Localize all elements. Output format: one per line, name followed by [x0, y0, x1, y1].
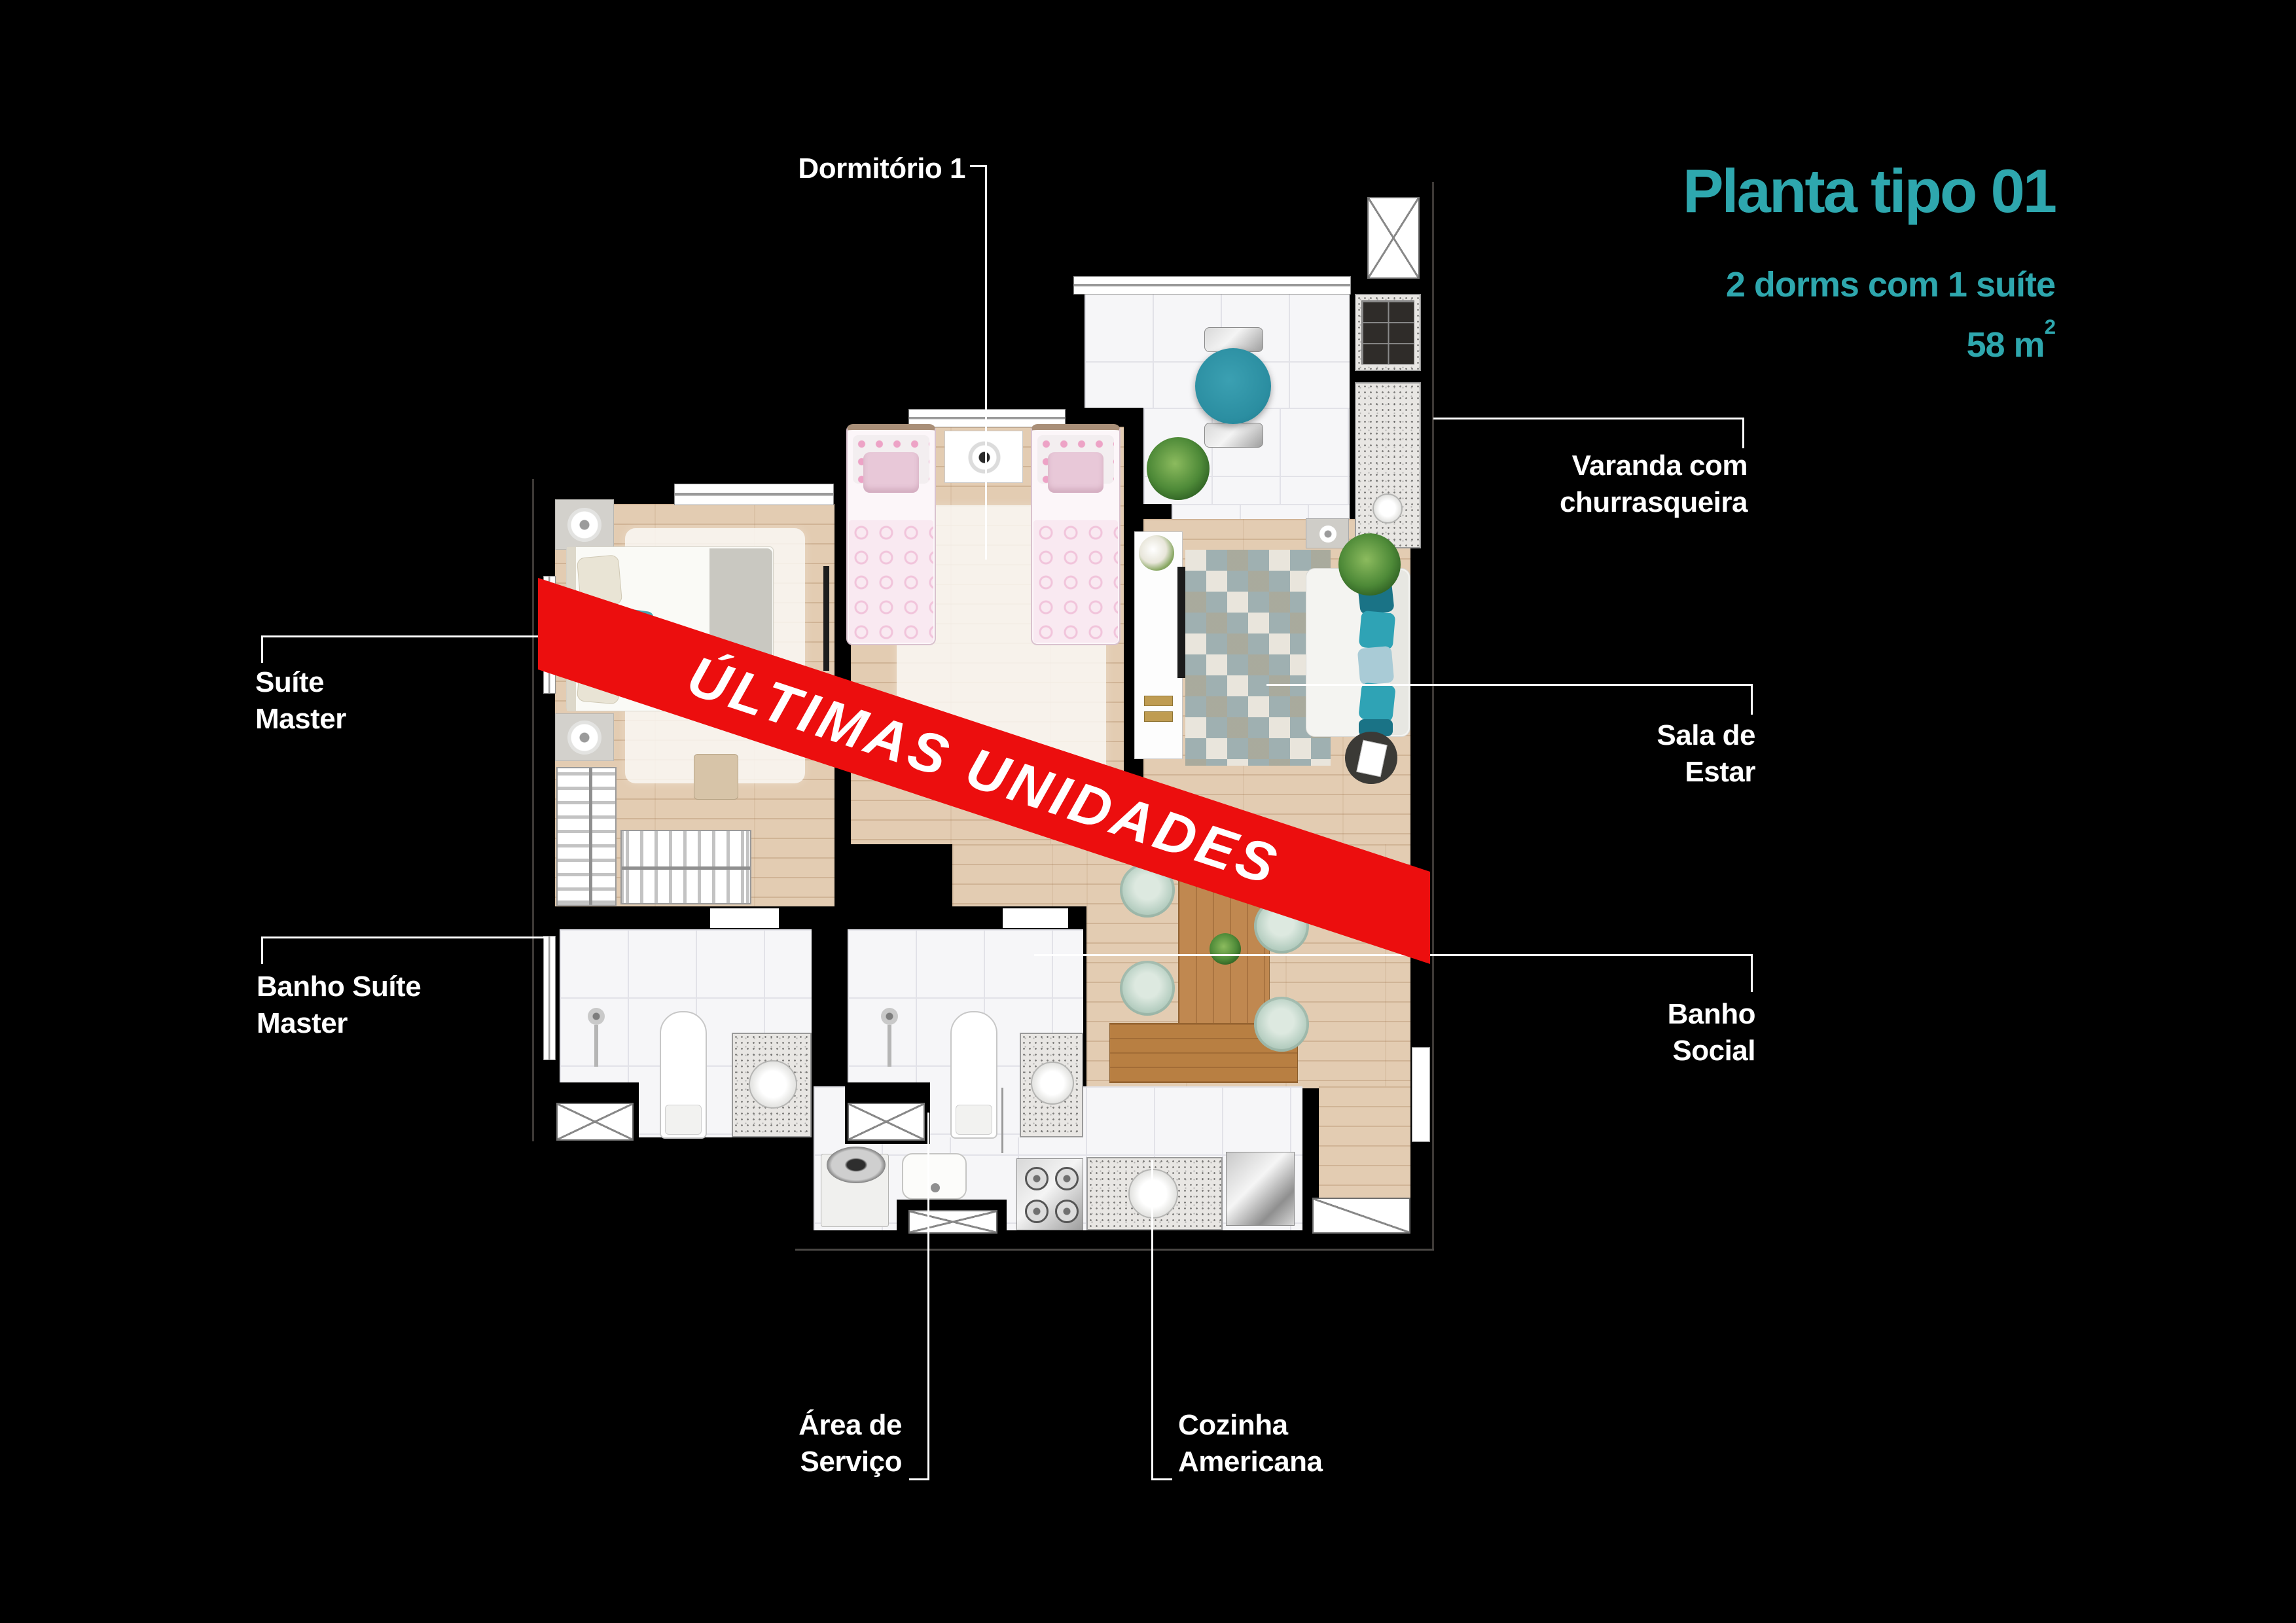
varanda-wall-unit: [1306, 518, 1349, 548]
entry-door-opening: [1412, 1047, 1430, 1142]
plan-outer-edge-right: [1432, 182, 1434, 1249]
bath1-shower-stem: [594, 1025, 598, 1067]
grill-icon: [1361, 300, 1414, 365]
suite-sconce-bottom: [555, 713, 614, 761]
callout-suite-line2: Master: [255, 701, 346, 738]
sofa-pillow-4: [1358, 682, 1396, 722]
callout-line-area-h: [909, 1478, 929, 1480]
kitchen-counter: [1086, 1157, 1223, 1230]
varanda-bench-counter: [1355, 382, 1421, 548]
dorm-bed-left-cover: [849, 520, 933, 643]
suite-window-top: [674, 484, 834, 505]
callout-line-area-v: [927, 1113, 929, 1480]
bath1-door-opening: [710, 908, 779, 928]
suite-closet-rack-horizontal: [620, 830, 751, 904]
stove-burner-2: [1055, 1167, 1079, 1190]
suite-sconce-top: [555, 499, 614, 550]
fridge: [1226, 1152, 1295, 1226]
callout-line-banho-suite-v: [261, 936, 263, 964]
callout-area-servico: Área de Serviço: [798, 1407, 902, 1480]
callout-sala-line2: Estar: [1657, 754, 1755, 791]
console-flowers: [1139, 535, 1174, 571]
stove-burner-4: [1055, 1200, 1079, 1223]
callout-sala-estar: Sala de Estar: [1657, 717, 1755, 791]
dorm-bed-left: [846, 424, 936, 645]
callout-banho-social-line1: Banho: [1668, 996, 1755, 1033]
remote-2: [1144, 711, 1173, 722]
floorplan-poster: ÚLTIMAS UNIDADES Dormitório 1 Suíte Mast…: [0, 0, 2296, 1623]
callout-line-sala-h: [1266, 684, 1751, 686]
varanda-plant: [1147, 437, 1210, 500]
sofa-pillow-3: [1357, 646, 1395, 685]
callout-suite-line1: Suíte: [255, 664, 346, 701]
sofa-pillow-2: [1359, 611, 1396, 650]
right-low-window: [1312, 1198, 1410, 1234]
callout-varanda-line1: Varanda com: [1560, 448, 1748, 484]
bath2-door-opening: [1003, 908, 1068, 928]
callout-line-cozinha-v: [1151, 1160, 1153, 1480]
dining-chair-4: [1254, 997, 1309, 1052]
bath1-shower-head: [588, 1008, 605, 1025]
callout-area-line1: Área de: [798, 1407, 902, 1444]
dorm-bed-right-cushion: [1048, 452, 1103, 493]
plan-area: 58 m2: [1966, 325, 2055, 365]
bath1-window-left: [543, 936, 556, 1060]
sala-plant: [1338, 533, 1401, 596]
callout-line-varanda-h: [1433, 418, 1742, 419]
elevator-shaft: [1367, 197, 1420, 279]
callout-banho-suite-line1: Banho Suíte: [257, 969, 421, 1005]
dorm-bed-right: [1031, 424, 1121, 645]
suite-closet-rack-vertical: [556, 767, 617, 906]
side-table: [1345, 732, 1397, 784]
washing-machine: [821, 1154, 889, 1227]
plan-outer-edge-left: [532, 479, 534, 1141]
varanda-sink: [1372, 493, 1403, 524]
callout-varanda-line2: churrasqueira: [1560, 484, 1748, 521]
callout-banho-social: Banho Social: [1668, 996, 1755, 1069]
dorm-nightstand: [944, 431, 1023, 483]
bath2-toilet: [950, 1011, 997, 1139]
bath1-vanity: [732, 1033, 812, 1137]
callout-suite-master: Suíte Master: [255, 664, 346, 738]
callout-sala-line1: Sala de: [1657, 717, 1755, 754]
callout-banho-social-line2: Social: [1668, 1033, 1755, 1069]
plan-outer-edge-bottom: [795, 1249, 1434, 1251]
callout-area-line2: Serviço: [798, 1444, 902, 1480]
dorm-bed-right-cover: [1033, 520, 1118, 643]
bath1-toilet: [660, 1011, 707, 1139]
callout-line-banho-social-h: [1034, 954, 1751, 956]
bath2-shower-stem: [888, 1025, 891, 1067]
bath1-sink: [749, 1060, 797, 1109]
callout-varanda: Varanda com churrasqueira: [1560, 448, 1748, 521]
callout-line-varanda-v: [1742, 418, 1744, 448]
right-hall-floor: [1319, 1086, 1410, 1198]
remote-1: [1144, 696, 1173, 706]
callout-dormitorio1: Dormitório 1: [798, 151, 965, 187]
callout-cozinha: Cozinha Americana: [1178, 1407, 1323, 1480]
bath2-low-window: [848, 1103, 925, 1141]
plan-area-sup: 2: [2045, 315, 2055, 338]
plan-area-value: 58 m: [1966, 325, 2044, 365]
hall-floor: [952, 844, 1086, 906]
callout-dormitorio1-line1: Dormitório 1: [798, 151, 965, 187]
bath1-low-window: [556, 1103, 634, 1141]
varanda-bench-bottom: [1204, 423, 1263, 448]
plan-subtitle: 2 dorms com 1 suíte: [1726, 264, 2055, 305]
varanda-window: [1073, 276, 1351, 294]
callout-line-cozinha-h: [1151, 1478, 1172, 1480]
callout-banho-suite: Banho Suíte Master: [257, 969, 421, 1042]
callout-line-dormitorio-v: [985, 165, 987, 560]
callout-line-sala-v: [1751, 684, 1753, 715]
plan-subtitle-text: 2 dorms com 1 suíte: [1726, 265, 2055, 304]
page-title: Planta tipo 01: [1683, 156, 2055, 226]
magazine: [1356, 740, 1388, 777]
callout-cozinha-line2: Americana: [1178, 1444, 1323, 1480]
bath2-shower-head: [881, 1008, 898, 1025]
dorm-nightstand-lamp: [967, 440, 1002, 475]
suite-ottoman: [694, 754, 738, 800]
varanda-table: [1195, 348, 1271, 424]
kitchen-sink: [1128, 1169, 1178, 1219]
callout-banho-suite-line2: Master: [257, 1005, 421, 1042]
callout-line-banho-suite-h: [261, 936, 545, 938]
suite-tv: [823, 566, 829, 671]
laundry-low-window: [908, 1210, 997, 1234]
callout-line-suite-h: [261, 635, 553, 637]
dining-chair-2: [1120, 961, 1175, 1016]
varanda-wall-unit-knob: [1319, 526, 1336, 543]
callout-cozinha-line1: Cozinha: [1178, 1407, 1323, 1444]
grill-counter: [1355, 294, 1421, 371]
dorm-bed-left-cushion: [863, 452, 919, 493]
bath2-sink: [1031, 1061, 1074, 1105]
washer-lid: [827, 1147, 886, 1183]
bath2-vanity: [1020, 1033, 1083, 1137]
stove-burner-3: [1025, 1200, 1049, 1223]
kitchen-door-line: [1001, 1088, 1003, 1153]
callout-line-suite-v: [261, 635, 263, 663]
stove-burner-1: [1025, 1167, 1049, 1190]
callout-line-banho-social-v: [1751, 954, 1753, 992]
laundry-faucet: [931, 1183, 940, 1192]
laundry-sink: [902, 1153, 967, 1200]
stove: [1016, 1158, 1083, 1230]
dining-plant: [1210, 933, 1241, 965]
